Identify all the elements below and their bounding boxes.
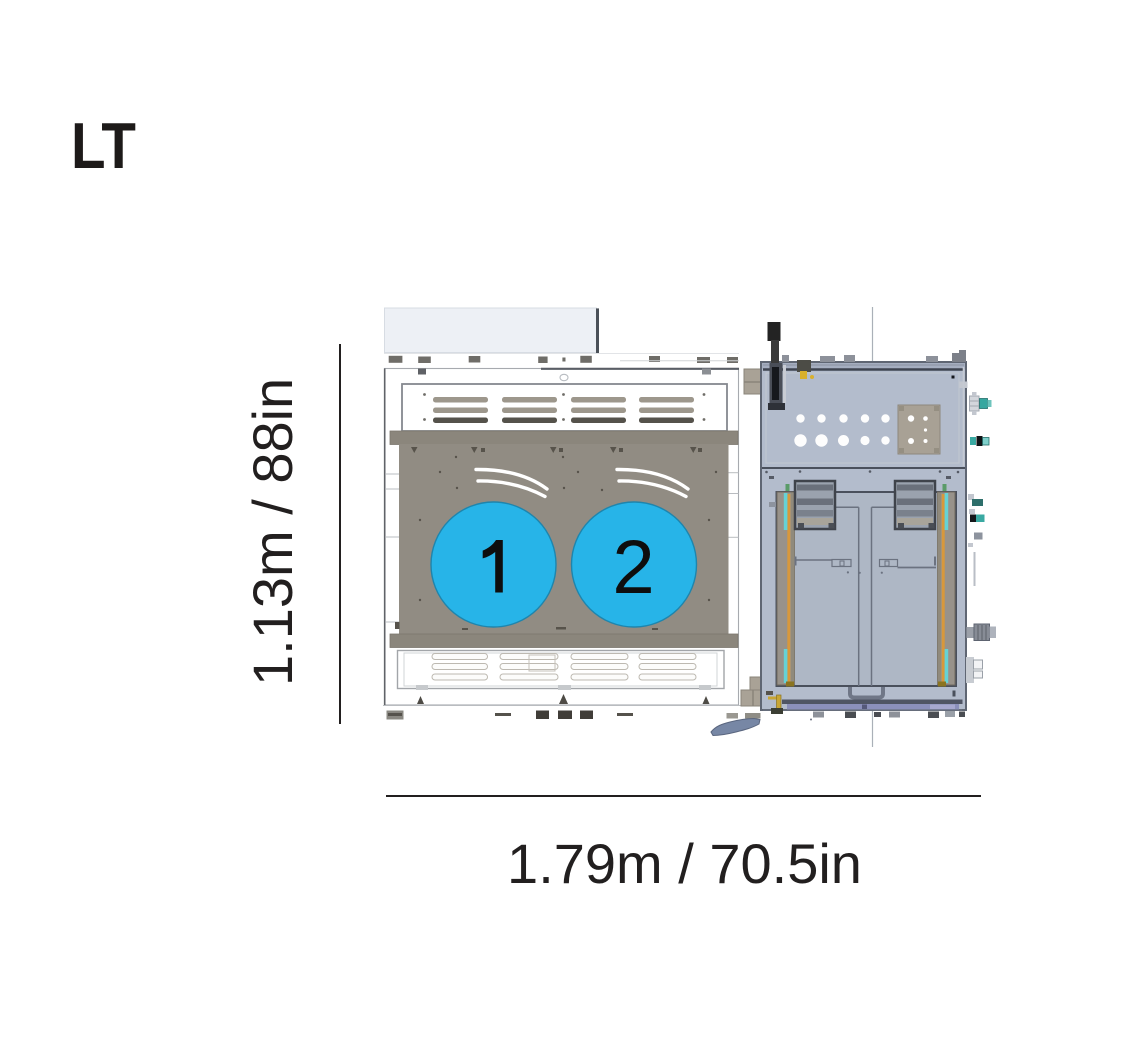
svg-text:2: 2: [612, 525, 654, 610]
svg-text:LT: LT: [71, 109, 136, 182]
svg-text:1.13m / 88in: 1.13m / 88in: [241, 378, 304, 686]
svg-text:1.79m / 70.5in: 1.79m / 70.5in: [507, 832, 862, 895]
